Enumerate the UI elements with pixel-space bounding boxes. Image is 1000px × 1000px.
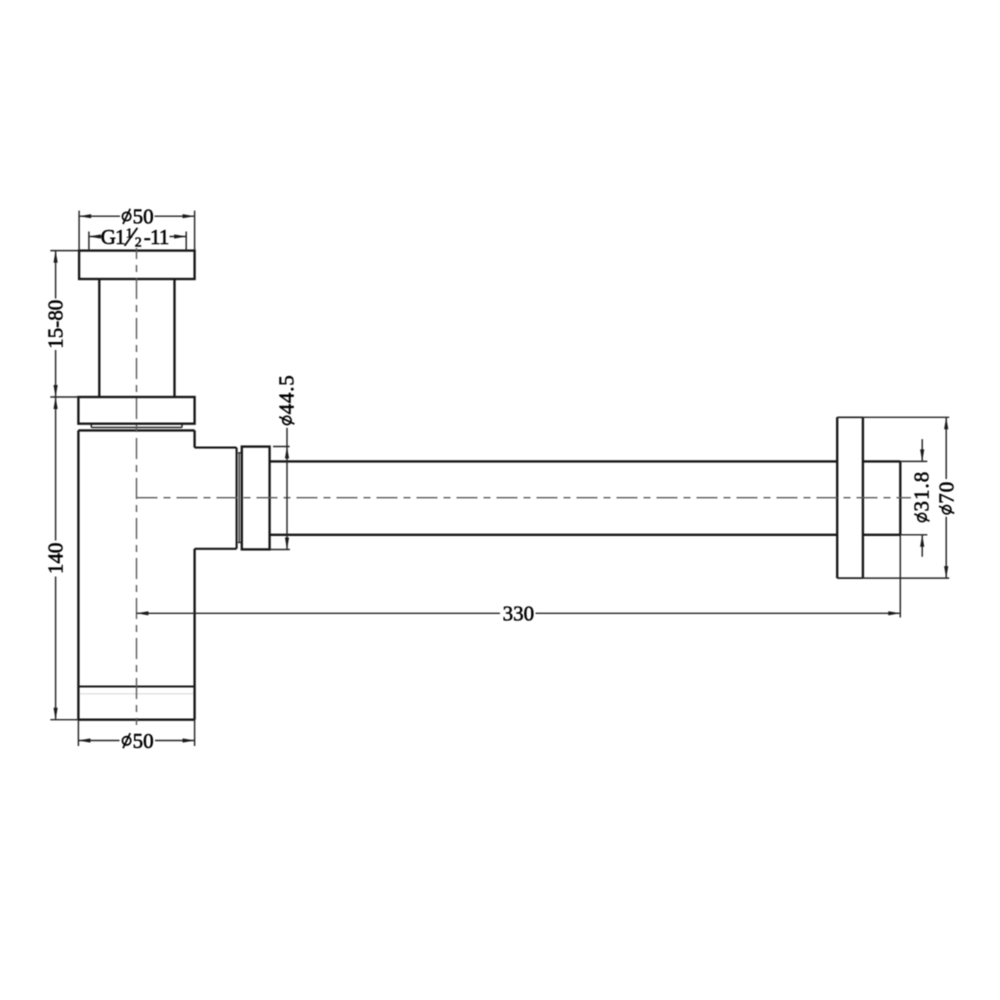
svg-text:70: 70 — [934, 481, 958, 504]
svg-text:31.8: 31.8 — [910, 471, 934, 512]
svg-text:50: 50 — [133, 729, 154, 753]
svg-text:15-80: 15-80 — [44, 300, 68, 349]
svg-text:330: 330 — [503, 602, 534, 626]
svg-text:140: 140 — [44, 543, 68, 575]
svg-text:44.5: 44.5 — [275, 374, 299, 414]
svg-text:-11: -11 — [144, 225, 169, 249]
svg-text:G1: G1 — [101, 225, 125, 249]
svg-text:2: 2 — [135, 236, 142, 251]
